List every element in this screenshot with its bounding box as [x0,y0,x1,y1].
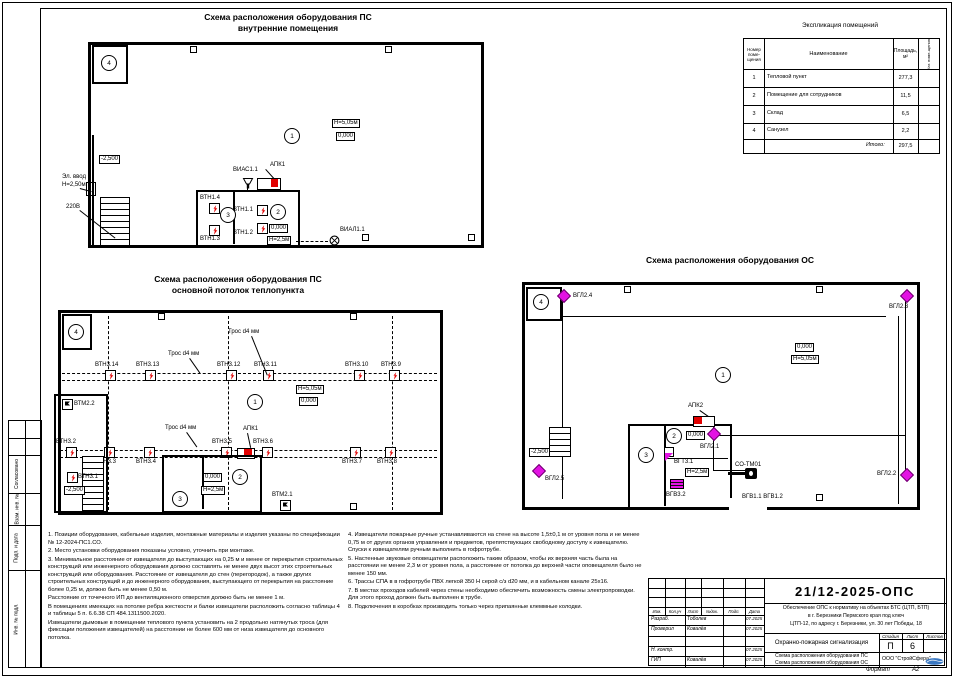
pilaster [816,286,823,293]
row-area: 11,5 [893,87,918,105]
stamp-date: 07.2025 [746,627,762,632]
heat-detector-icon [262,447,273,458]
stamp-role: Н. контр. [651,648,674,653]
cable-callout: Трос d4 мм [168,351,199,357]
plan2-level-room: 0,000 [203,473,222,482]
drawing-name-2: Схема расположения оборудования ОС [764,659,879,667]
stamp-date: 07.2025 [746,658,762,663]
security-detector-label: ВГЛ2.5 [545,476,564,482]
detector-label: ВТН3.12 [217,362,240,368]
cable-callout: Трос d4 мм [228,329,259,335]
plan3-room3-tag: 3 [638,447,654,463]
notes-left: 1. Позиции оборудования, кабельные издел… [48,532,343,643]
heat-detector-icon [67,472,78,483]
row-name: Тепловой пункт [767,75,807,81]
stamp-col-list: Лист [685,607,701,615]
plan1-el-input-label1: Эл. ввод [62,174,86,180]
heat-detector-icon [209,203,220,214]
pilaster [816,494,823,501]
plan3-inner-wall [563,316,886,317]
row-num: 4 [744,123,764,139]
stamp-name: Ковалёв [687,658,706,663]
stamp-col-izm: Изм. [649,607,665,615]
note: 4. Извещатели пожарные ручные устанавлив… [348,532,645,555]
plan1-room2-tag: 2 [270,204,286,220]
side-divider [25,421,26,667]
plan3-stairs [549,427,571,457]
plan1-room1-tag: 1 [284,128,300,144]
panel-apk2-red [694,417,702,424]
grid-line [392,316,393,510]
plan2-room1-tag: 1 [247,394,263,410]
project-desc-1: Обеспечение ОПС к нормативу на объектах … [770,606,942,611]
pilaster [362,234,369,241]
title-block: Изм. Кол.уч Лист №док. Подп. Дата Разраб… [648,578,945,666]
stamp-col-koluch: Кол.уч [665,607,685,615]
heat-detector-icon [105,370,116,381]
col-header-area: Площадь, м² [893,39,918,69]
glassbreak-detector-label: ВГТ3.1 [674,459,693,465]
plan3-height-main: Н=5,05м [791,355,819,364]
plan2-level-low: -2,500 [64,486,85,495]
security-detector-label: ВГЛ2.1 [700,444,719,450]
project-desc-3: ЦТП-12, по адресу г. Березники, ул. 30 л… [770,622,942,627]
row-area: 6,5 [893,105,918,123]
door-contact-label: ВГВ3.2 [666,492,686,498]
grid-line [108,316,109,510]
lamp-icon [329,233,340,251]
stage-value: П [879,639,902,652]
wire [905,299,906,471]
plan1-level-low: -2,500 [99,155,120,164]
note: 5. Настенные звуковые оповещатели распол… [348,556,645,579]
stamp-name: Ковалёв [687,627,706,632]
row-area: 277,3 [893,69,918,87]
stamp-role: Разраб. [651,617,669,622]
plan1-level-main: 0,000 [336,132,355,141]
note: Расстояние от точечного ИП до вентиляцио… [48,595,343,603]
cable-line [62,380,437,381]
side-label-inv: Инв. № подл. [9,570,25,667]
detector-label: ВТН1.4 [200,195,220,201]
col-header-name: Наименование [764,39,893,69]
security-detector-label: ВГЛ2.4 [573,293,592,299]
stamp-date: 07.2025 [746,617,762,622]
plan1-title-line1: Схема расположения оборудования ПС [204,12,372,22]
plan1-cable-run [120,245,198,246]
plan1-lamp-label: ВИАЛ1.1 [340,227,365,233]
plan3-height-room: Н=2,5м [685,468,709,477]
detector-label: ВТН3.9 [381,362,401,368]
plan1-el-input-box [86,182,96,196]
plan1-panel-label: АПК1 [270,162,285,168]
row-name: Помещение для сотрудников [767,93,842,99]
sounder-icon [242,176,254,194]
plan1-level-room: 0,000 [269,224,288,233]
stamp-col-podp: Подп. [723,607,745,615]
format-value: А2 [912,667,919,673]
plan2-room4-tag: 4 [68,324,84,340]
explication-table: Номер поме- щения Наименование Площадь, … [743,38,940,154]
detector-label: ВТН3.11 [254,362,277,368]
pilaster [385,46,392,53]
drawing-sheet: Согласовано Взам. инв. № Подп. и дата Ин… [0,0,954,678]
heat-detector-icon [385,447,396,458]
detector-label: ВТН3.8 [377,459,397,465]
plan3-level-main: 0,000 [795,343,814,352]
plan1-title-line2: внутренние помещения [238,23,338,33]
note: В помещениях имеющих на потолке ребра же… [48,604,343,619]
plan1-el-input-label2: Н=2,50м [62,182,86,188]
explication-title: Экспликация помещений [802,22,878,29]
manual-callpoint-icon [280,500,291,511]
plan2-room-divider [202,455,204,509]
plan3-level-low: -2,500 [529,448,550,457]
detector-label: ВТН3.10 [345,362,368,368]
stamp-col-data: Дата [745,607,764,615]
security-detector-label: ВГЛ2.2 [877,471,896,477]
stamp-date: 07.2025 [746,648,762,653]
plan1-sounder-label: ВИАС1.1 [233,167,258,173]
total-label: Итого: [866,143,885,149]
col-header-num: Номер поме- щения [744,39,764,69]
pilaster [350,503,357,510]
row-num: 3 [744,105,764,123]
side-stamp: Согласовано Взам. инв. № Подп. и дата Ин… [8,420,42,668]
plan1-stairs [100,197,130,247]
system-name: Охранно-пожарная сигнализация [764,633,879,652]
plan3-room2-tag: 2 [666,428,682,444]
sheets-label: Листов [923,633,946,639]
detector-label: ВТН3.6 [253,439,273,445]
wire [714,435,905,436]
note: 3. Минимальное расстояние от извещателя … [48,557,343,595]
row-name: Склад [767,111,783,117]
detector-label: ВТН3.14 [95,362,118,368]
heat-detector-icon [226,370,237,381]
sounder-stem [247,186,248,191]
panel-apk1-red [271,179,278,187]
manual-callpoint-icon [62,399,73,410]
plan1-power-label: 220В [66,204,80,210]
plan3-panel-label: АПК2 [688,403,703,409]
door-contact-label: ВГВ1.1 ВГВ1.2 [742,494,783,500]
cable-callout: Трос d4 мм [165,425,196,431]
plan2-detector31-label: ВТН3.1 [78,474,98,480]
glassbreak-detector-icon [664,447,674,457]
plan2-stairs [82,456,104,511]
notes-right: 4. Извещатели пожарные ручные устанавлив… [348,532,645,612]
plan1-height-main: Н=5,05м [332,119,360,128]
pilaster [158,313,165,320]
plan2-title-line2: основной потолок теплопункта [172,285,304,295]
plan2-height-main: Н=5,05м [296,385,324,394]
pilaster [350,313,357,320]
plan3-inner-wall [898,316,899,504]
side-label-vzam: Взам. инв. № [9,493,25,525]
sheet-value: 6 [902,639,923,652]
plan2-manual22-label: ВТМ2.2 [74,401,95,407]
plan2-room3-tag: 3 [172,491,188,507]
door-contact-icon [670,479,684,489]
heat-detector-icon [144,447,155,458]
detector-label: ВТН3.13 [136,362,159,368]
detector-label: ВТН1.1 [233,207,253,213]
company-logo [925,654,944,672]
stamp-line [723,579,724,667]
cable-line [62,373,437,374]
project-desc-2: в г. Березники Пермского края под ключ [770,614,942,619]
total-area: 297,5 [893,139,918,153]
plan2-height-room: Н=2,5м [201,486,225,495]
row-num: 2 [744,87,764,105]
note: Извещатели дымовые в помещении теплового… [48,620,343,643]
plan3-level-room: 0,000 [686,431,705,440]
pilaster [624,286,631,293]
stamp-role: Проверил [651,627,674,632]
plan2-title-line1: Схема расположения оборудования ПС [154,274,322,284]
heat-detector-icon [257,205,268,216]
col-header-cat: Кат. поме-щения [918,39,939,69]
plan1-cable-run [296,241,328,242]
heat-detector-icon [389,370,400,381]
heat-detector-icon [257,223,268,234]
stamp-line [649,588,764,589]
stamp-name: Тоболев [687,617,706,622]
detector-label: ВТН1.2 [233,230,253,236]
stamp-line [685,579,686,667]
stamp-line [649,597,764,598]
plan3-room1-tag: 1 [715,367,731,383]
plan2-level-main: 0,000 [299,397,318,406]
pilaster [468,234,475,241]
note: 1. Позиции оборудования, кабельные издел… [48,532,343,547]
doc-number: 21/12-2025-ОПС [764,579,946,603]
detector-label: ВТН1.3 [200,236,220,242]
note: 6. Трассы СПА в в гофротрубе ПВХ легкой … [348,579,645,587]
plan3-title: Схема расположения оборудования ОС [646,255,814,265]
stamp-col-dok: №док. [701,607,723,615]
detector-label: ВТН3.7 [342,459,362,465]
plan2-room2-tag: 2 [232,469,248,485]
wire [562,299,563,499]
plan1-height-room: Н=2,5м [267,236,291,245]
side-label-soglasovano: Согласовано [9,455,25,493]
heat-detector-icon [209,225,220,236]
security-detector-label: ВГЛ2.3 [889,304,908,310]
row-area: 2,2 [893,123,918,139]
company-name: ООО "СтройСфера" [882,657,931,662]
heat-detector-icon [145,370,156,381]
note: 7. В местах проходов кабелей через стены… [348,588,645,603]
plan2-panel-label: АПК1 [243,426,258,432]
reader-cable [728,472,746,475]
side-label-podp: Подп. и дата [9,525,25,570]
row-name: Санузел [767,128,788,134]
stamp-line [764,603,946,604]
plan3-room4-tag: 4 [533,294,549,310]
row-num: 1 [744,69,764,87]
stamp-role: ГИП [651,658,661,663]
heat-detector-icon [350,447,361,458]
note: 8. Подключения в коробках производить то… [348,604,645,612]
note: 2. Место установки оборудования показаны… [48,548,343,556]
heat-detector-icon [354,370,365,381]
detector-label: ВТН3.4 [136,459,156,465]
plan2-manual21-label: ВТМ2.1 [272,492,293,498]
stamp-line [745,579,746,667]
stamp-line [649,636,764,637]
pilaster [190,46,197,53]
reader-icon [745,468,757,479]
plan1-room4-tag: 4 [101,55,117,71]
format-label: Формат [866,667,890,673]
detector-label: ВТН3.5 [212,439,232,445]
